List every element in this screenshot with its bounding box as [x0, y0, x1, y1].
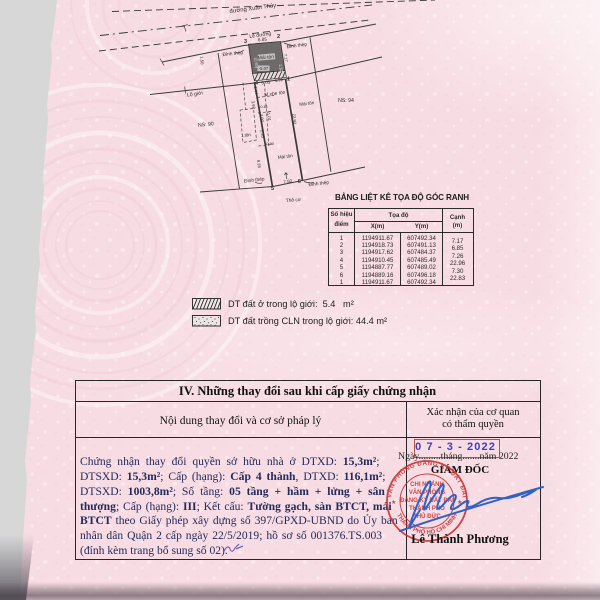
svg-text:5: 5: [271, 186, 274, 192]
svg-text:1.44: 1.44: [253, 86, 259, 95]
svg-text:9.35: 9.35: [256, 159, 262, 168]
svg-text:Lộ giới: Lộ giới: [187, 91, 203, 99]
svg-text:1.50: 1.50: [199, 56, 205, 65]
svg-text:5.05: 5.05: [261, 79, 271, 85]
svg-text:1: 1: [287, 77, 290, 83]
svg-text:Đỉnh thép: Đỉnh thép: [308, 179, 330, 188]
svg-text:3: 3: [244, 39, 247, 45]
svg-text:đường Xuân Thủy: đường Xuân Thủy: [229, 2, 277, 15]
svg-text:M che tôn: M che tôn: [264, 90, 286, 99]
svg-text:Đỉnh thép: Đỉnh thép: [222, 49, 243, 58]
svg-text:4.00: 4.00: [259, 113, 265, 122]
svg-text:7.17: 7.17: [283, 53, 289, 62]
svg-text:-0.81: -0.81: [259, 104, 268, 109]
svg-text:Thổ cư: Thổ cư: [285, 196, 302, 204]
svg-text:Mái tôn: Mái tôn: [278, 153, 294, 160]
svg-text:7.50: 7.50: [283, 178, 293, 184]
svg-text:3.98: 3.98: [251, 100, 257, 109]
svg-text:Đỉnh thép: Đỉnh thép: [286, 41, 308, 51]
svg-text:1.91: 1.91: [274, 77, 283, 83]
svg-text:NS: 94: NS: 94: [338, 98, 354, 104]
svg-text:1.32: 1.32: [278, 64, 284, 73]
svg-text:1.tôn: 1.tôn: [241, 132, 252, 138]
svg-text:6: 6: [298, 179, 301, 185]
svg-text:6.85: 6.85: [258, 37, 268, 43]
svg-text:2.30: 2.30: [260, 129, 266, 138]
svg-text:NS: 90: NS: 90: [198, 121, 214, 128]
svg-text:Mái tôn: Mái tôn: [299, 100, 315, 107]
svg-text:2: 2: [277, 34, 280, 40]
svg-text:-5.07: -5.07: [259, 66, 269, 71]
svg-text:-0.90: -0.90: [265, 141, 275, 146]
